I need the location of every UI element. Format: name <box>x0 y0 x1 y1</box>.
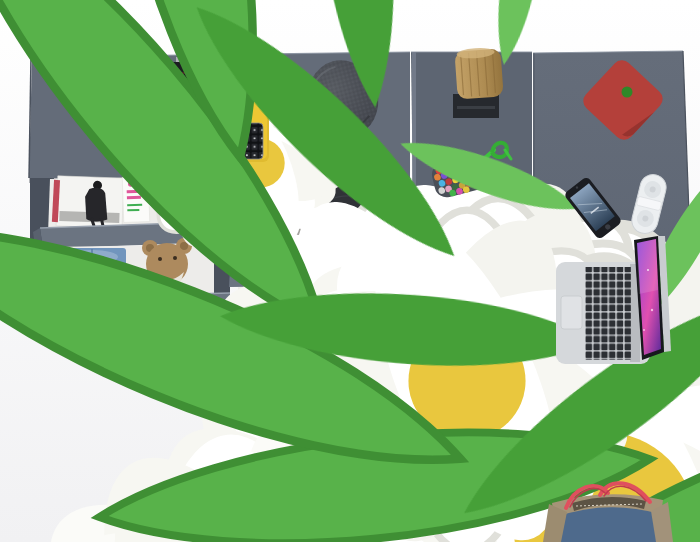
laptop-keyboard <box>585 267 631 360</box>
laptop-trackpad <box>561 296 582 329</box>
magazine-bw <box>56 176 124 228</box>
wood-stump <box>453 46 504 118</box>
furniture-top-view-render <box>0 0 700 542</box>
